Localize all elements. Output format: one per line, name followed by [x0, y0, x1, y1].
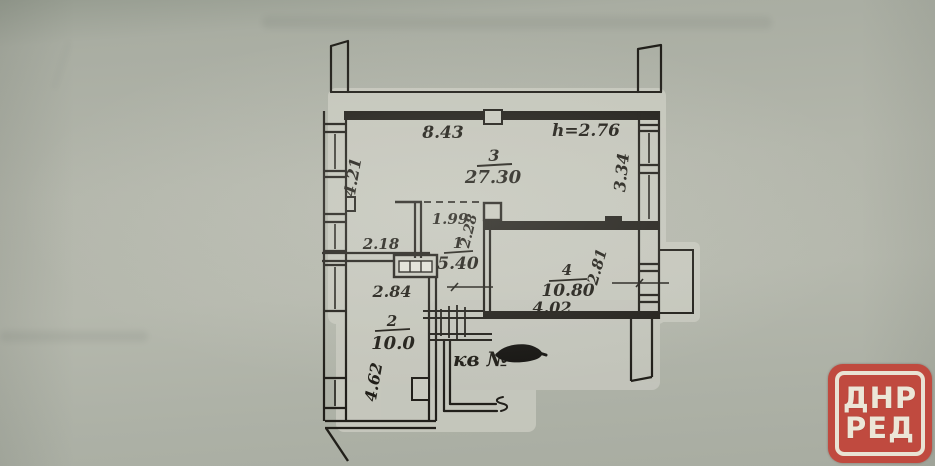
ceiling-height-label: h=2.76 [552, 121, 620, 141]
room4-number: 4 [562, 261, 572, 279]
room2-number: 2 [386, 312, 397, 330]
exterior-upper-walls [331, 41, 661, 92]
room1-area: 5.40 [437, 254, 479, 274]
floor-plan-drawing: 8.43 h=2.76 4.21 3.34 1.99 2.28 2.18 2.8… [0, 0, 935, 466]
scanned-floor-plan-page: 8.43 h=2.76 4.21 3.34 1.99 2.28 2.18 2.8… [0, 0, 935, 466]
top-wall-niche [484, 110, 502, 124]
watermark-stamp-border: ДНР РЕД [835, 371, 925, 456]
room4-area: 10.80 [541, 281, 594, 301]
room3-number: 3 [488, 146, 499, 165]
watermark-stamp: ДНР РЕД [828, 364, 932, 463]
dim-room2-width: 2.84 [372, 282, 412, 301]
dim-room2-top: 2.18 [362, 235, 400, 253]
bleed-through-smudge [0, 331, 148, 342]
room1-number: 1 [453, 234, 463, 252]
room3-area: 27.30 [464, 167, 522, 188]
bleed-through-smudge [262, 16, 772, 29]
dim-top-width: 8.43 [421, 123, 464, 143]
watermark-line-2: РЕД [845, 414, 915, 443]
room2-area: 10.0 [371, 333, 415, 354]
watermark-line-1: ДНР [843, 384, 917, 413]
dim-right-upper: 3.34 [610, 152, 633, 193]
